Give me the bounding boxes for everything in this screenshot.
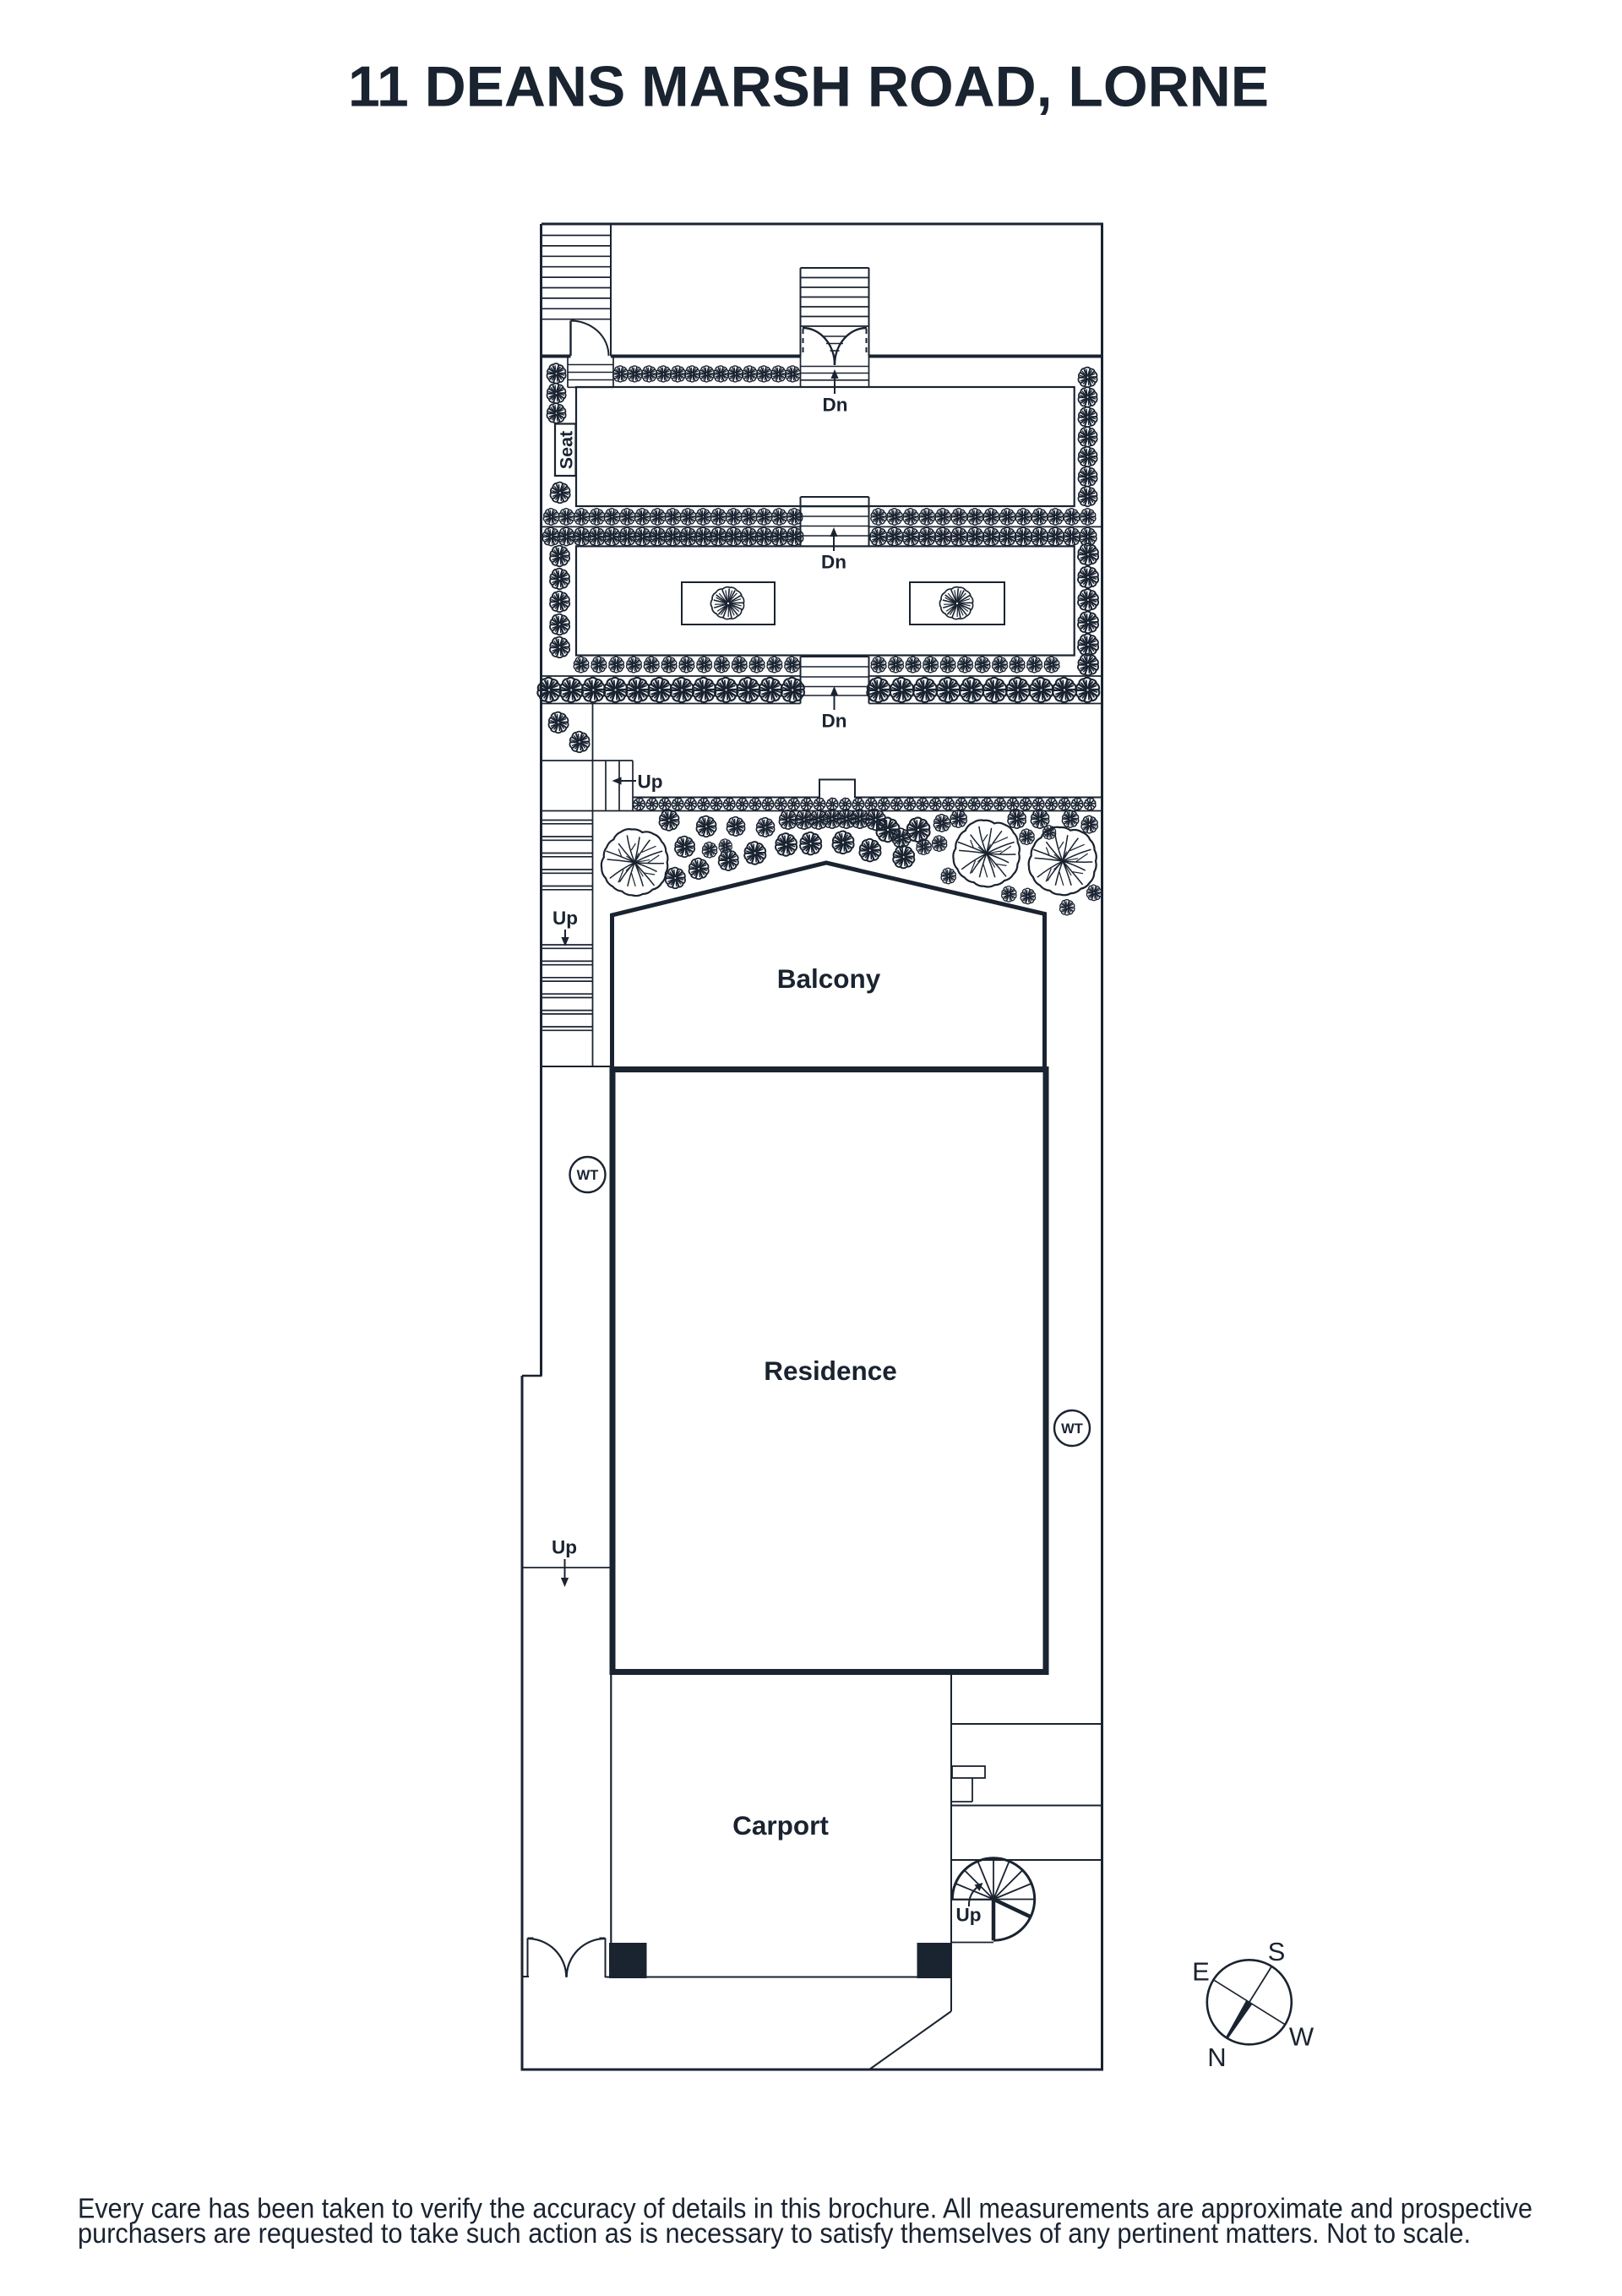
- svg-text:Up: Up: [552, 1537, 577, 1558]
- svg-text:Dn: Dn: [822, 711, 847, 732]
- svg-text:WT: WT: [577, 1168, 599, 1183]
- svg-text:Carport: Carport: [732, 1810, 829, 1841]
- svg-text:Dn: Dn: [823, 395, 848, 416]
- svg-text:purchasers are requested to ta: purchasers are requested to take such ac…: [78, 2217, 1471, 2249]
- svg-text:WT: WT: [1061, 1421, 1083, 1437]
- svg-text:Up: Up: [552, 908, 578, 929]
- svg-text:S: S: [1268, 1937, 1286, 1966]
- svg-text:11 DEANS MARSH ROAD, LORNE: 11 DEANS MARSH ROAD, LORNE: [348, 55, 1269, 119]
- svg-text:Balcony: Balcony: [777, 963, 881, 994]
- svg-text:N: N: [1207, 2042, 1226, 2072]
- svg-text:Seat: Seat: [557, 431, 577, 469]
- svg-text:Residence: Residence: [764, 1355, 897, 1386]
- svg-text:E: E: [1192, 1957, 1210, 1987]
- svg-text:W: W: [1289, 2022, 1314, 2052]
- svg-text:Up: Up: [956, 1905, 982, 1926]
- svg-text:Dn: Dn: [821, 552, 846, 573]
- svg-text:Up: Up: [638, 772, 663, 793]
